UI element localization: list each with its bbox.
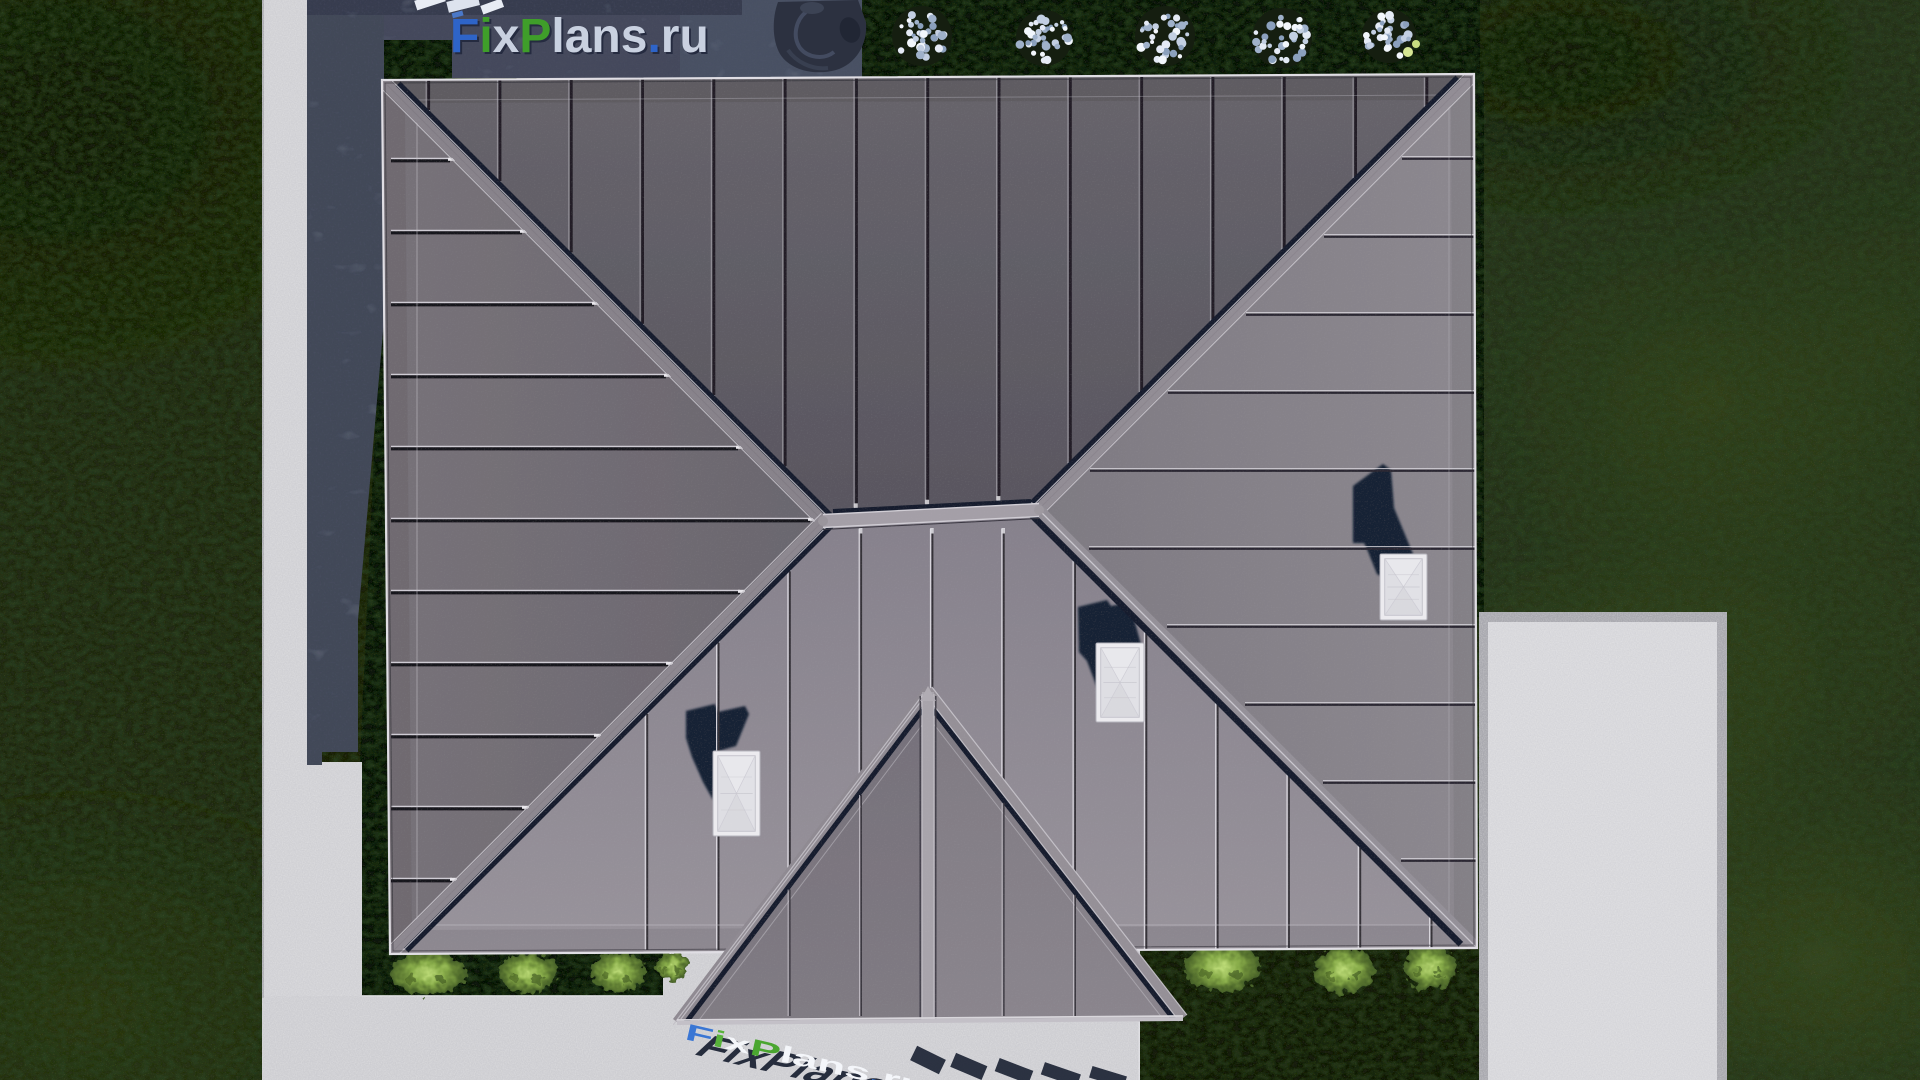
svg-text:FixPlans.ru: FixPlans.ru [450, 10, 709, 63]
